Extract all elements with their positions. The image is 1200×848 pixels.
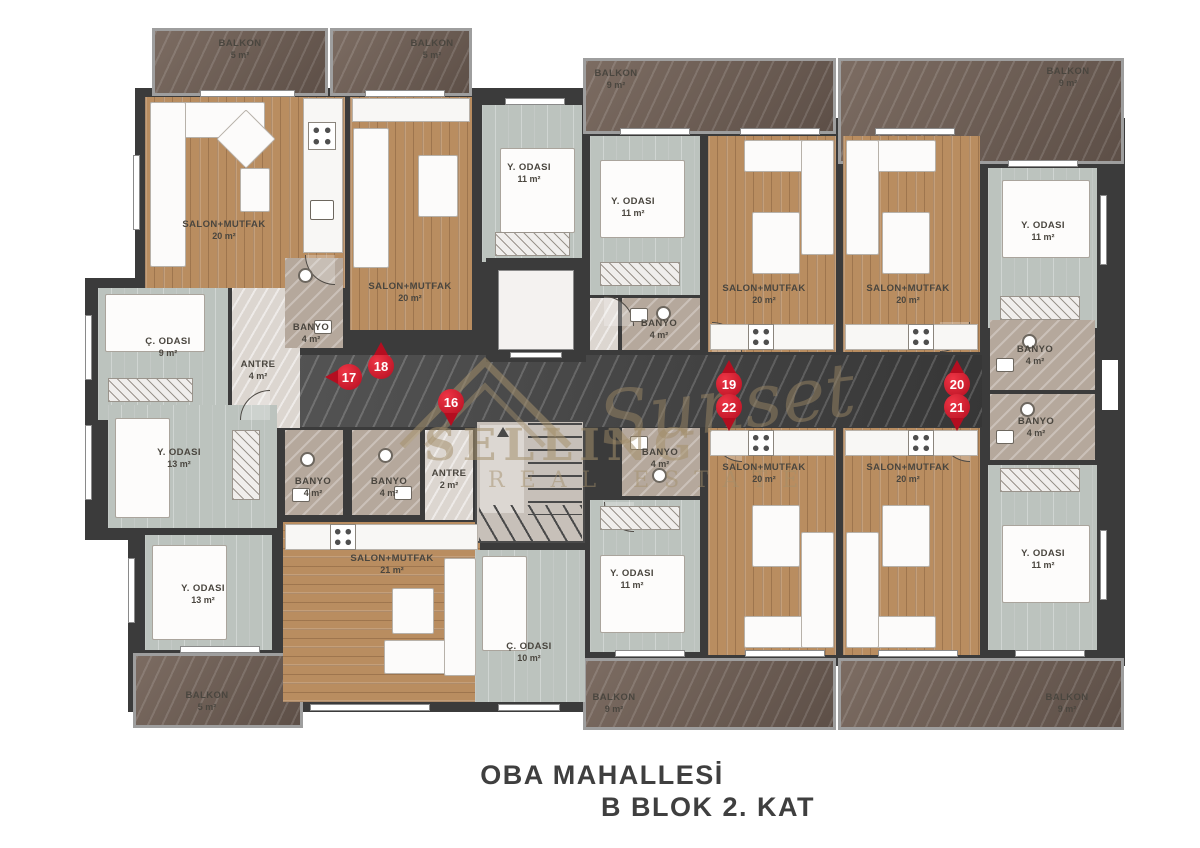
- room-label-salon-1: SALON+MUTFAK20 m²: [182, 219, 265, 243]
- sofa: [846, 532, 879, 648]
- wardrobe: [495, 232, 570, 256]
- room-label-salon-2: SALON+MUTFAK20 m²: [368, 281, 451, 305]
- window: [615, 650, 685, 657]
- window: [85, 315, 92, 380]
- room-label-balkon-rb2: BALKON9 m²: [1045, 692, 1088, 716]
- room-banyo-b1-floor: [285, 430, 343, 515]
- room-banyo-b2-floor: [352, 430, 420, 515]
- sofa: [801, 140, 834, 255]
- staircase-winders: [479, 505, 582, 541]
- room-label-banyo-b1: BANYO4 m²: [295, 476, 331, 500]
- room-label-banyo-top: BANYO4 m²: [293, 322, 329, 346]
- window: [128, 558, 135, 623]
- room-label-bedroom-13a: Y. ODASI13 m²: [157, 447, 201, 471]
- table: [392, 588, 434, 634]
- unit-marker-16: 16: [438, 389, 464, 415]
- table: [882, 212, 930, 274]
- sofa: [846, 140, 879, 255]
- window: [1100, 530, 1107, 600]
- elevator-car: [498, 270, 574, 350]
- room-label-banyo-b2: BANYO4 m²: [371, 476, 407, 500]
- stove-icon: [748, 430, 774, 456]
- window: [180, 646, 260, 653]
- floor-plan: SELLING Sunset REAL ESTATE SALON+MUTFAK2…: [0, 0, 1200, 848]
- wardrobe: [1000, 468, 1080, 492]
- kitchen-counter: [352, 98, 470, 122]
- room-label-bedroom-13b: Y. ODASI13 m²: [181, 583, 225, 607]
- bed: [600, 555, 685, 633]
- room-label-salon-rb2: SALON+MUTFAK20 m²: [866, 462, 949, 486]
- bed: [1002, 180, 1090, 258]
- room-label-bedroom-top: Y. ODASI11 m²: [507, 162, 551, 186]
- toilet-icon: [1020, 402, 1035, 417]
- room-label-salon-rt1: SALON+MUTFAK20 m²: [722, 283, 805, 307]
- room-label-balkon-tl2: BALKON5 m²: [410, 38, 453, 62]
- room-label-banyo-r1: BANYO4 m²: [1017, 344, 1053, 368]
- stove-icon: [908, 324, 934, 350]
- window: [1015, 650, 1085, 657]
- stove-icon: [748, 324, 774, 350]
- window: [310, 704, 430, 711]
- elevator-door: [510, 352, 562, 358]
- unit-marker-18: 18: [368, 353, 394, 379]
- room-label-bedroom-rb1: Y. ODASI11 m²: [610, 568, 654, 592]
- window: [1008, 160, 1078, 167]
- table: [752, 212, 800, 274]
- room-label-bedroom-rt1: Y. ODASI11 m²: [611, 196, 655, 220]
- room-label-balkon-tl1: BALKON5 m²: [218, 38, 261, 62]
- window: [745, 650, 825, 657]
- wardrobe: [232, 430, 260, 500]
- bed: [482, 556, 527, 651]
- window: [878, 650, 958, 657]
- sink-icon: [996, 430, 1014, 444]
- plan-title-line2: B BLOK 2. KAT: [601, 792, 815, 823]
- wardrobe: [600, 262, 680, 286]
- room-label-salon-rt2: SALON+MUTFAK20 m²: [866, 283, 949, 307]
- room-label-antre-4: ANTRE4 m²: [241, 359, 276, 383]
- window: [498, 704, 560, 711]
- plan-title-line1: OBA MAHALLESİ: [480, 760, 724, 791]
- room-label-bedroom-rt2: Y. ODASI11 m²: [1021, 220, 1065, 244]
- room-label-salon-rb1: SALON+MUTFAK20 m²: [722, 462, 805, 486]
- kitchen-counter: [285, 524, 478, 550]
- room-label-cocuk-9: Ç. ODASI9 m²: [145, 336, 190, 360]
- toilet-icon: [300, 452, 315, 467]
- room-label-balkon-rb1: BALKON9 m²: [592, 692, 635, 716]
- bed: [500, 148, 575, 233]
- room-label-bedroom-rb2: Y. ODASI11 m²: [1021, 548, 1065, 572]
- staircase-treads: [528, 423, 582, 515]
- toilet-icon: [298, 268, 313, 283]
- unit-marker-21: 21: [944, 394, 970, 420]
- table: [752, 505, 800, 567]
- toilet-icon: [378, 448, 393, 463]
- room-label-banyo-rt1: BANYO4 m²: [641, 318, 677, 342]
- unit-marker-17: 17: [336, 364, 362, 390]
- window: [740, 128, 820, 135]
- stove-icon: [308, 122, 336, 150]
- room-label-banyo-r2: BANYO4 m²: [1018, 416, 1054, 440]
- sink-icon: [996, 358, 1014, 372]
- window: [365, 90, 445, 97]
- stove-icon: [908, 430, 934, 456]
- unit-marker-22: 22: [716, 394, 742, 420]
- table: [418, 155, 458, 217]
- room-label-banyo-rb1: BANYO4 m²: [642, 447, 678, 471]
- wardrobe: [600, 506, 680, 530]
- sofa: [353, 128, 389, 268]
- table: [240, 168, 270, 212]
- room-label-balkon-rt1: BALKON9 m²: [594, 68, 637, 92]
- wardrobe: [1000, 296, 1080, 320]
- window: [620, 128, 690, 135]
- table: [882, 505, 930, 567]
- window: [875, 128, 955, 135]
- room-label-cocuk-10: Ç. ODASI10 m²: [506, 641, 551, 665]
- window: [200, 90, 295, 97]
- room-label-salon-3: SALON+MUTFAK21 m²: [350, 553, 433, 577]
- sofa: [444, 558, 476, 676]
- wall-right-protrusion-inner: [1102, 360, 1118, 410]
- room-label-antre-2: ANTRE2 m²: [432, 468, 467, 492]
- room-label-balkon-bl: BALKON5 m²: [185, 690, 228, 714]
- sofa: [801, 532, 834, 648]
- sink-icon: [310, 200, 334, 220]
- window: [85, 425, 92, 500]
- window: [133, 155, 140, 230]
- staircase-landing: [480, 425, 524, 513]
- corridor: [300, 355, 982, 427]
- window: [505, 98, 565, 105]
- staircase-up-arrow: [497, 427, 509, 437]
- wardrobe: [108, 378, 193, 402]
- sofa: [150, 102, 186, 267]
- window: [1100, 195, 1107, 265]
- room-label-balkon-rt2: BALKON9 m²: [1046, 66, 1089, 90]
- stove-icon: [330, 524, 356, 550]
